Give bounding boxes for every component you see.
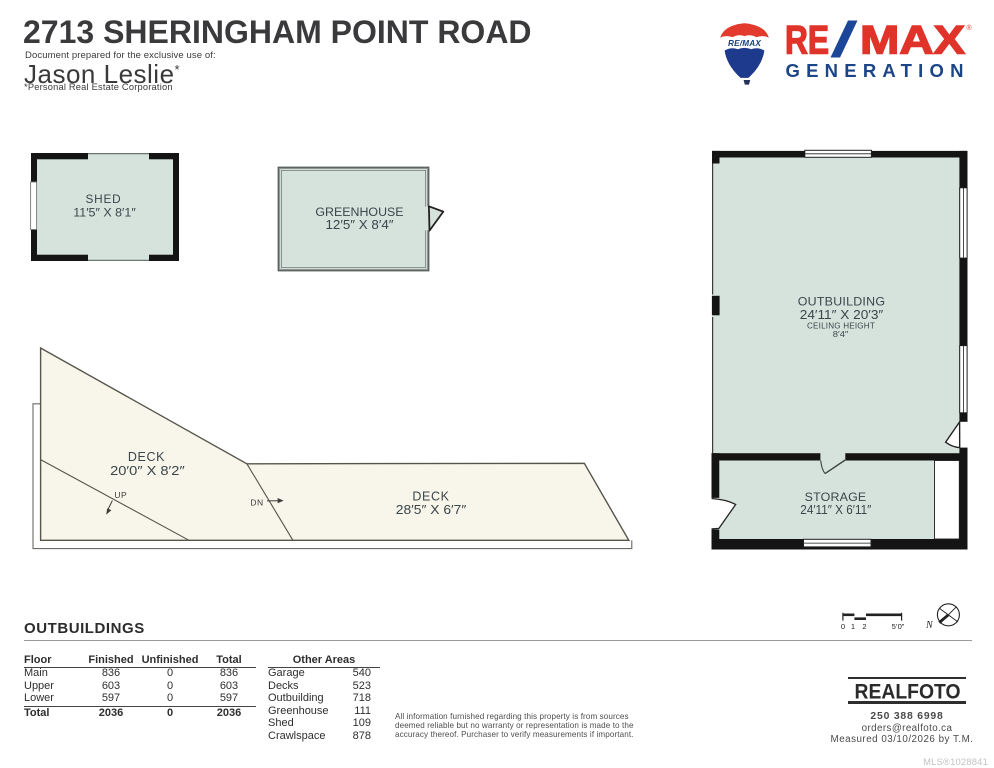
svg-text:20′0″ X 8′2″: 20′0″ X 8′2″ <box>110 464 185 478</box>
svg-text:12′5″ X 8′4″: 12′5″ X 8′4″ <box>326 218 395 232</box>
svg-text:DECK: DECK <box>412 489 449 503</box>
svg-text:DECK: DECK <box>128 450 165 464</box>
svg-text:RE/MAX: RE/MAX <box>728 39 761 48</box>
svg-text:RE: RE <box>785 19 829 63</box>
svg-text:UP: UP <box>114 490 127 500</box>
svg-text:1: 1 <box>851 622 855 631</box>
svg-text:OUTBUILDING: OUTBUILDING <box>798 294 885 308</box>
svg-text:MAX: MAX <box>860 19 965 63</box>
svg-text:SHED: SHED <box>86 192 122 206</box>
svg-text:2: 2 <box>862 622 866 631</box>
svg-text:N: N <box>925 620 934 631</box>
svg-text:REALFOTO: REALFOTO <box>855 680 961 704</box>
svg-text:24′11″ X 6′11″: 24′11″ X 6′11″ <box>800 503 871 517</box>
svg-text:®: ® <box>967 24 973 32</box>
svg-text:GREENHOUSE: GREENHOUSE <box>315 205 403 219</box>
svg-text:11′5″ X 8′1″: 11′5″ X 8′1″ <box>73 205 136 219</box>
svg-text:24′11″ X 20′3″: 24′11″ X 20′3″ <box>800 308 884 322</box>
svg-text:DN: DN <box>250 497 263 507</box>
svg-text:28′5″ X 6′7″: 28′5″ X 6′7″ <box>396 503 467 517</box>
svg-text:GENERATION: GENERATION <box>786 60 964 81</box>
svg-text:5’0”: 5’0” <box>892 622 905 631</box>
svg-text:0: 0 <box>841 622 845 631</box>
svg-text:8′4″: 8′4″ <box>833 329 849 339</box>
